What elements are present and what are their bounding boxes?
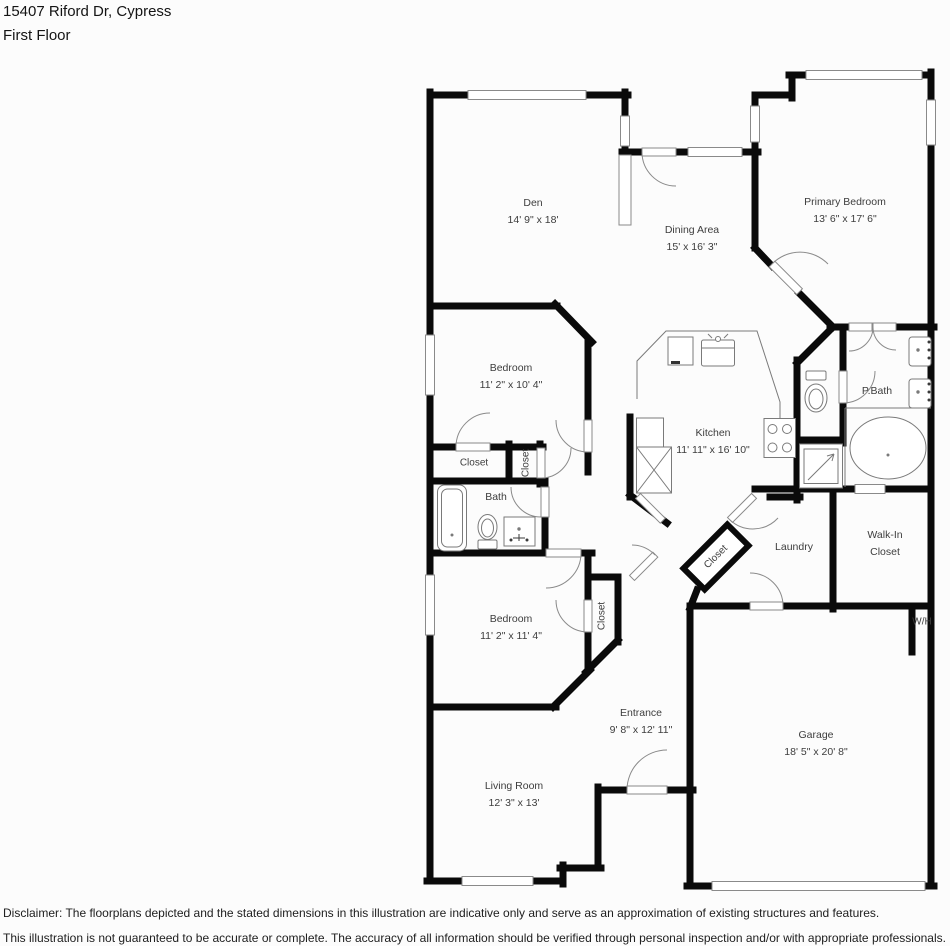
window-dining-top	[688, 148, 742, 157]
room-label-primary-bedroom: Primary Bedroom 13' 6" x 17' 6"	[804, 196, 886, 226]
water-heater-label: W/H	[912, 617, 931, 628]
garage-door	[712, 882, 925, 891]
sink-icon	[702, 334, 735, 366]
room-label-pbath: P.Bath	[862, 385, 892, 398]
room-label-walkin-closet: Walk-In Closet	[852, 527, 918, 561]
closet-label-1: Closet	[460, 458, 488, 469]
toilet-icon	[805, 371, 827, 412]
bathtub-icon	[438, 485, 467, 551]
floorplan-drawing	[0, 0, 950, 946]
soaking-tub-icon	[845, 408, 931, 487]
disclaimer-line-2: This illustration is not guaranteed to b…	[3, 931, 946, 945]
floorplan-page: { "header": { "address": "15407 Riford D…	[0, 0, 950, 946]
opening-walkin-top	[855, 485, 885, 494]
closet-label-3: Closet	[597, 602, 608, 630]
window-bedroom1-left	[426, 335, 435, 395]
window-primary-top	[806, 71, 922, 80]
room-label-entrance: Entrance 9' 8" x 12' 11"	[610, 707, 673, 737]
room-label-kitchen: Kitchen 11' 11" x 16' 10"	[676, 427, 750, 457]
vanity-sink-icon	[909, 337, 931, 366]
disclaimer-line-1: Disclaimer: The floorplans depicted and …	[3, 906, 879, 920]
room-label-bedroom-2: Bedroom 11' 2" x 11' 4"	[480, 613, 542, 643]
window-living-bottom	[462, 877, 533, 886]
cased-opening-dining	[619, 155, 631, 225]
window-den-top	[468, 91, 586, 100]
toilet-icon	[478, 515, 497, 550]
window-primary-left	[751, 106, 760, 142]
refrigerator-icon	[637, 418, 672, 493]
sink-icon	[504, 517, 535, 546]
stove-icon	[764, 419, 796, 458]
room-label-bath: Bath	[485, 491, 507, 504]
room-label-den: Den 14' 9" x 18'	[508, 197, 559, 227]
walls	[427, 72, 934, 886]
window-primary-right	[927, 100, 936, 145]
room-label-dining: Dining Area 15' x 16' 3"	[665, 224, 719, 254]
closet-label-2: Closet	[521, 449, 532, 477]
vanity-sink-icon	[909, 379, 931, 408]
room-label-garage: Garage 18' 5" x 20' 8"	[784, 729, 847, 759]
shower-icon	[800, 444, 843, 488]
room-label-laundry: Laundry	[775, 541, 813, 554]
window-den-right	[621, 116, 630, 146]
dishwasher-icon	[668, 337, 693, 365]
room-label-living-room: Living Room 12' 3" x 13'	[485, 780, 543, 810]
room-label-bedroom-1: Bedroom 11' 2" x 10' 4"	[480, 362, 543, 392]
window-bedroom2-left	[426, 575, 435, 635]
